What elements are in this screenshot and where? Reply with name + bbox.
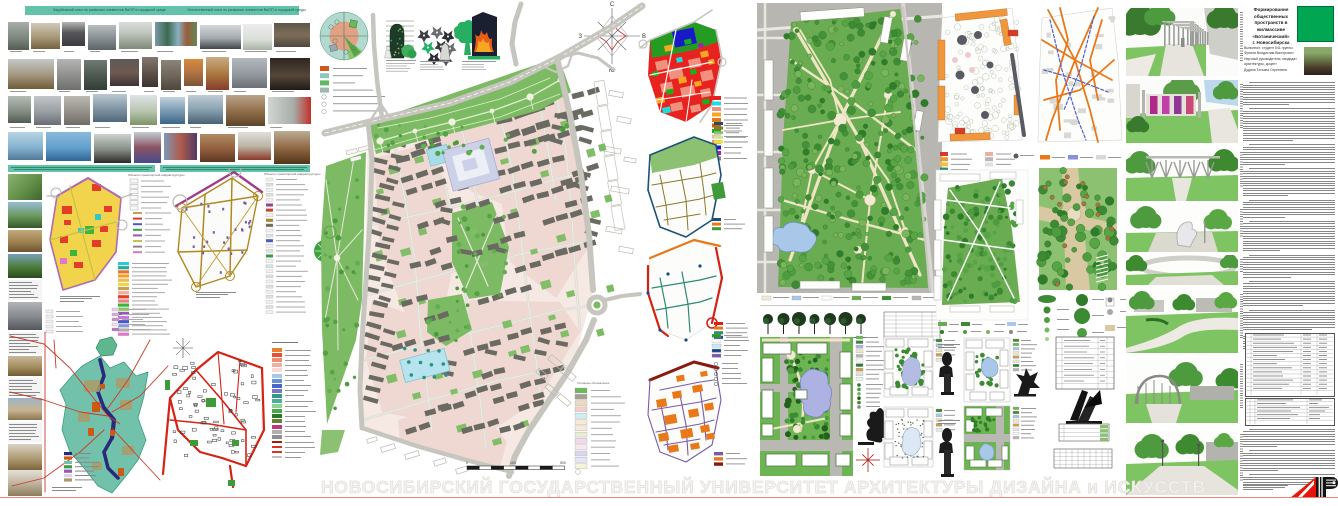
svg-text:0: 0: [466, 461, 468, 465]
svg-text:100: 100: [510, 461, 516, 465]
svg-text:Объекты транспортной инфрастру: Объекты транспортной инфраструктуры: [264, 172, 320, 176]
svg-text:500: 500: [560, 461, 566, 465]
svg-text:Объекты транспортной инфрастру: Объекты транспортной инфраструктуры: [128, 173, 184, 177]
svg-text:Условные обозначения: Условные обозначения: [577, 381, 610, 385]
